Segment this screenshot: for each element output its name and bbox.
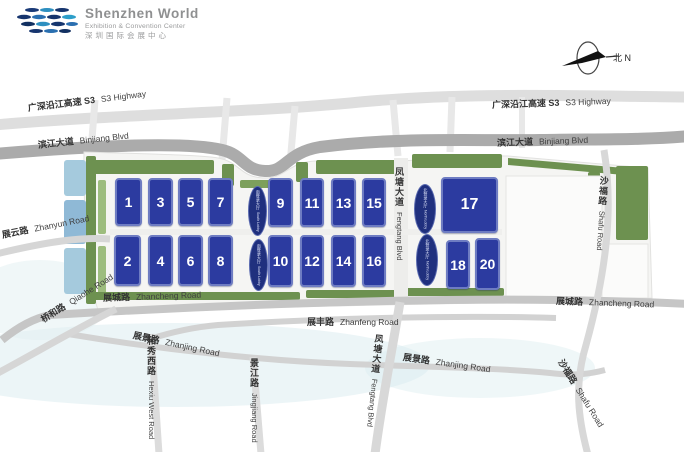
south-lobby-upper: 南登录大厅South Lobby <box>248 186 267 236</box>
hall-2: 2 <box>114 235 141 286</box>
hall-7: 7 <box>208 178 233 226</box>
hall-12: 12 <box>300 235 324 287</box>
hall-1: 1 <box>115 178 142 226</box>
hall-8: 8 <box>208 235 233 286</box>
logo-chinese: 深圳国际会展中心 <box>85 32 199 40</box>
road-label-jingjiang: 景江路Jingjiang Road <box>249 358 258 443</box>
hall-5: 5 <box>178 178 203 226</box>
hall-11: 11 <box>300 178 324 227</box>
hall-15: 15 <box>362 178 386 227</box>
logo-subtitle: Exhibition & Convention Center <box>85 23 199 30</box>
hall-6: 6 <box>178 235 203 286</box>
logo-mark <box>17 8 78 33</box>
hall-14: 14 <box>331 235 356 287</box>
logo: Shenzhen World Exhibition & Convention C… <box>85 7 199 40</box>
north-lobby-upper: 北登录大厅North Lobby <box>414 184 436 234</box>
hall-9: 9 <box>268 178 293 227</box>
road-label-zhanfeng: 展丰路Zhanfeng Road <box>307 318 399 327</box>
logo-title: Shenzhen World <box>85 7 199 21</box>
hall-10: 10 <box>268 235 293 287</box>
hall-3: 3 <box>148 178 173 226</box>
road-label-fengtang-mid: 凤塘大道Fengtang Blvd <box>394 167 403 260</box>
hall-18: 18 <box>446 240 470 289</box>
south-lobby-lower: 南登录大厅South Lobby <box>249 239 268 291</box>
compass-icon <box>562 42 618 74</box>
road-label-hexiu: 和秀西路Hexiu West Road <box>146 336 155 439</box>
map-canvas: Shenzhen World Exhibition & Convention C… <box>0 0 684 452</box>
hall-17: 17 <box>441 177 498 233</box>
hall-20: 20 <box>475 238 500 290</box>
compass-north-label: 北 N <box>613 51 631 64</box>
north-lobby-lower: 北登录大厅North Lobby <box>416 234 438 286</box>
hall-13: 13 <box>331 178 356 227</box>
hall-16: 16 <box>362 235 386 287</box>
hall-4: 4 <box>148 235 173 286</box>
